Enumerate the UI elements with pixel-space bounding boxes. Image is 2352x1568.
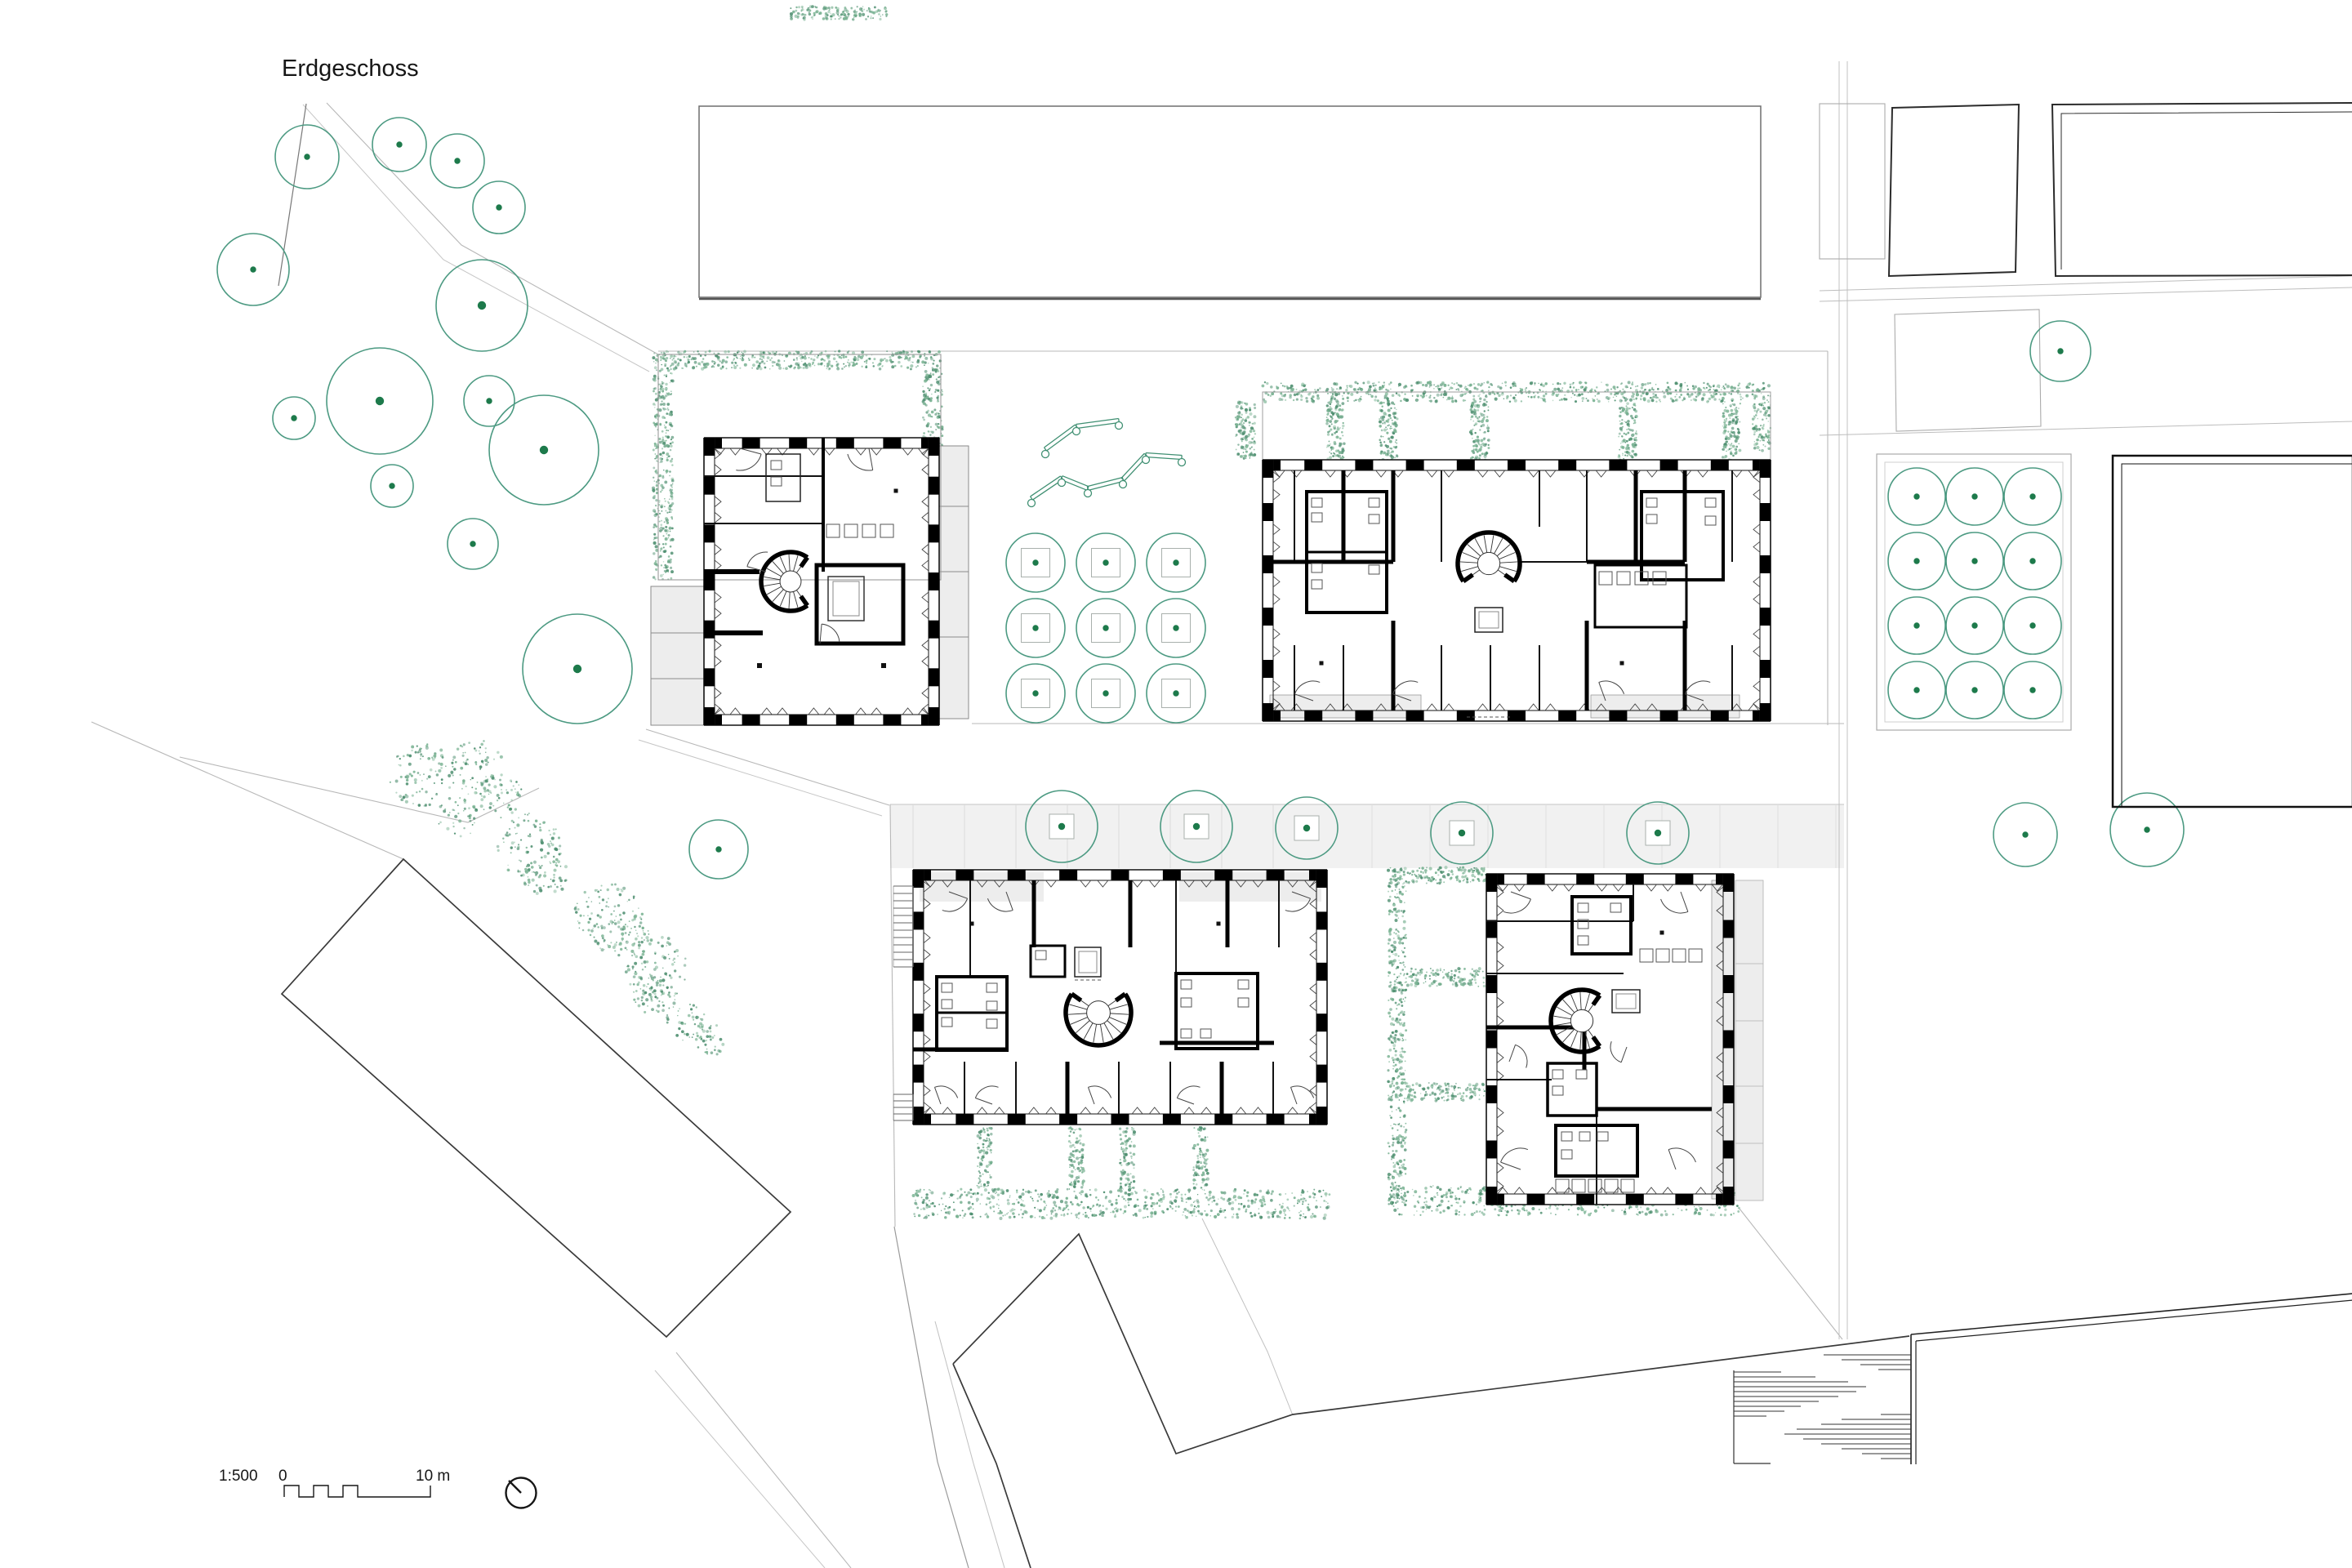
trees-layer	[217, 118, 2184, 879]
scale-north-layer	[284, 1478, 537, 1508]
building-plans-layer	[651, 354, 1771, 1205]
scale-zero-label: 0	[278, 1468, 287, 1486]
scale-ten-label: 10 m	[416, 1468, 450, 1486]
scale-ratio-label: 1:500	[219, 1468, 258, 1486]
site-plan-drawing	[0, 0, 2352, 1568]
north-arrow-icon	[506, 1475, 507, 1476]
site-lines-layer	[91, 61, 2352, 1568]
page-title: Erdgeschoss	[282, 56, 419, 82]
floor-plan-page: Erdgeschoss 1:500 0 10 m	[0, 0, 2352, 1568]
benches-layer	[1028, 419, 1186, 507]
